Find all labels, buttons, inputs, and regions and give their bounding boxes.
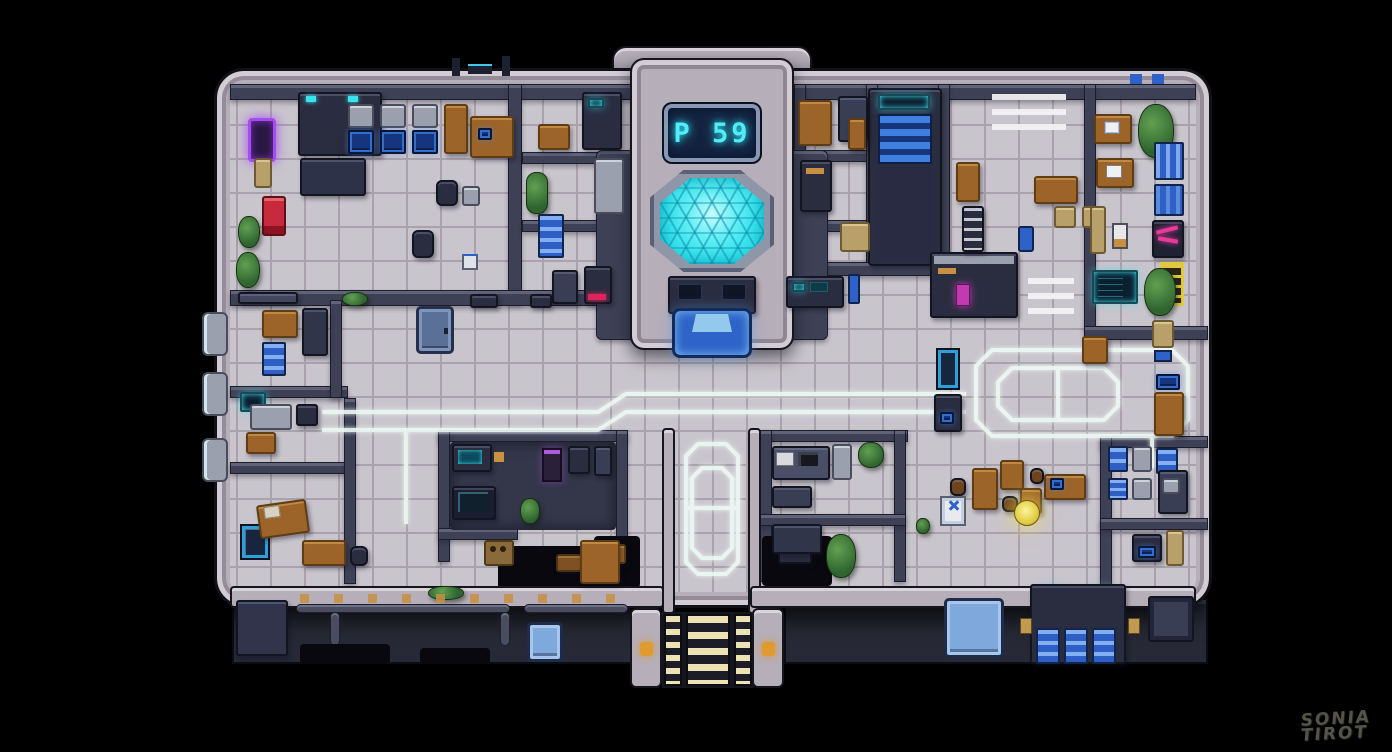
ladder-rack bbox=[962, 206, 984, 252]
entrance-lamp bbox=[762, 642, 775, 656]
walkway-wall bbox=[662, 428, 675, 614]
cabinet-white[interactable] bbox=[1132, 446, 1152, 472]
facade-locker[interactable] bbox=[1036, 628, 1060, 664]
blue-pillar-unit bbox=[848, 274, 860, 304]
blue-bookshelf bbox=[1154, 184, 1184, 216]
facade-recess bbox=[420, 648, 490, 664]
wall-shelf bbox=[238, 292, 298, 304]
lounge-table bbox=[302, 540, 346, 566]
laptop[interactable] bbox=[1050, 478, 1064, 490]
crate-in-vault bbox=[556, 554, 582, 572]
facade-recess bbox=[300, 644, 390, 664]
facade-pipe-elbow bbox=[500, 612, 510, 646]
tall-crate bbox=[1090, 206, 1106, 254]
supply-crate bbox=[840, 222, 870, 252]
blue-drawer-unit bbox=[262, 342, 286, 376]
artist-signature: SONIA TIROT bbox=[1289, 710, 1382, 745]
wall bbox=[330, 300, 342, 398]
machine-ledge bbox=[934, 256, 1014, 264]
blue-staircase[interactable] bbox=[878, 114, 932, 164]
wall bbox=[230, 462, 352, 474]
wall-cabinet bbox=[254, 158, 272, 188]
beige-machine bbox=[1166, 530, 1184, 566]
plant bbox=[520, 498, 540, 524]
interior-door[interactable] bbox=[416, 306, 454, 354]
display-case bbox=[1112, 223, 1128, 249]
wall bbox=[438, 430, 628, 442]
plant bbox=[236, 252, 260, 288]
facade-door-blue[interactable] bbox=[527, 622, 563, 662]
cabinet bbox=[552, 270, 578, 304]
chair bbox=[950, 478, 966, 496]
entrance-stairs-right[interactable] bbox=[734, 614, 752, 686]
fridge[interactable] bbox=[832, 444, 852, 480]
facade-locker[interactable] bbox=[1064, 628, 1088, 664]
facade-machine bbox=[1148, 596, 1194, 642]
planter bbox=[342, 292, 368, 306]
wooden-shelf bbox=[470, 116, 514, 158]
radio-dial bbox=[500, 546, 506, 552]
gold-slot bbox=[1128, 618, 1140, 634]
console-screen bbox=[722, 284, 746, 300]
chamber-display-screen[interactable]: P 59 bbox=[664, 104, 760, 162]
glowing-lamp bbox=[1014, 500, 1040, 526]
wooden-counter bbox=[580, 540, 620, 584]
tall-tree bbox=[826, 534, 856, 578]
crate-stack bbox=[798, 100, 832, 146]
storage-shelves bbox=[772, 524, 822, 554]
exterior-pod bbox=[202, 438, 228, 482]
table bbox=[1082, 336, 1108, 364]
crate bbox=[1054, 206, 1076, 228]
stairwell-shadow bbox=[876, 166, 934, 260]
cafeteria-table bbox=[1000, 460, 1024, 490]
facade-pipe bbox=[296, 604, 510, 613]
desk-monitor bbox=[296, 404, 318, 426]
wooden-cabinet bbox=[444, 104, 468, 154]
roof-vent bbox=[468, 64, 492, 74]
side-table bbox=[462, 186, 480, 206]
rack-item bbox=[806, 168, 824, 174]
shelf bbox=[594, 446, 612, 476]
entrance-lamp bbox=[640, 642, 653, 656]
hazard-crosswalk bbox=[1028, 278, 1074, 318]
white-table bbox=[940, 496, 966, 526]
wall-machine bbox=[470, 294, 498, 308]
plant bbox=[858, 442, 884, 468]
console-screen bbox=[792, 282, 806, 292]
microwave bbox=[776, 452, 794, 466]
small-plant bbox=[916, 518, 930, 534]
wooden-cabinet bbox=[956, 162, 980, 202]
roof-antenna bbox=[502, 56, 510, 76]
desk bbox=[1154, 392, 1184, 436]
facade-locker[interactable] bbox=[1092, 628, 1116, 664]
blue-bookshelf bbox=[1154, 142, 1184, 180]
bed-foot-table bbox=[300, 158, 366, 196]
console-screen bbox=[810, 282, 828, 292]
blue-device[interactable] bbox=[1156, 374, 1180, 390]
honeycomb-pattern bbox=[660, 178, 764, 264]
facade-pipe bbox=[524, 604, 628, 613]
roof-antenna bbox=[452, 58, 460, 76]
desk-terminal[interactable] bbox=[412, 130, 438, 154]
hanging-plants bbox=[526, 172, 548, 214]
office-desk bbox=[250, 404, 292, 430]
console-item bbox=[494, 452, 504, 462]
blue-cabinet[interactable] bbox=[538, 214, 564, 258]
wall bbox=[760, 430, 908, 442]
office-chair bbox=[436, 180, 458, 206]
gold-slot bbox=[1020, 618, 1032, 634]
large-blue-door[interactable] bbox=[944, 598, 1004, 658]
door-handle bbox=[444, 328, 448, 334]
wall-machine bbox=[530, 294, 552, 308]
plant bbox=[238, 216, 260, 248]
desk-terminal[interactable] bbox=[380, 130, 406, 154]
pillow bbox=[263, 505, 281, 519]
file-shelf bbox=[302, 308, 328, 356]
stored-box bbox=[1162, 478, 1180, 494]
large-plant bbox=[1144, 268, 1176, 316]
entrance-stairs-main[interactable] bbox=[686, 614, 730, 686]
crate bbox=[1152, 320, 1174, 348]
facade-pipe-elbow bbox=[330, 612, 340, 646]
console bbox=[568, 446, 590, 474]
wooden-bench bbox=[1034, 176, 1078, 204]
facade-window-strip bbox=[300, 594, 620, 603]
roof-flag bbox=[1152, 74, 1164, 84]
terminal-display[interactable] bbox=[1092, 270, 1138, 304]
shelf-unit bbox=[594, 158, 624, 214]
cooktop bbox=[798, 452, 818, 466]
energy-pool[interactable] bbox=[660, 178, 764, 264]
holo-gate-glow bbox=[692, 314, 732, 332]
waste-bin bbox=[462, 254, 478, 270]
roof-flag bbox=[1130, 74, 1142, 84]
locker[interactable] bbox=[1108, 446, 1128, 472]
neon-purple-sign bbox=[248, 118, 276, 162]
exterior-pod bbox=[202, 372, 228, 416]
drawer-unit[interactable] bbox=[1108, 478, 1128, 500]
bed-indicator bbox=[306, 96, 316, 102]
exterior-pod bbox=[202, 312, 228, 356]
magenta-screen bbox=[956, 284, 970, 306]
console-screen bbox=[458, 450, 482, 464]
wall bbox=[438, 430, 450, 562]
stairwell-sign-screen bbox=[878, 94, 930, 110]
tablet-on-shelf bbox=[478, 128, 492, 140]
wall bbox=[1100, 518, 1208, 530]
desk-shelf bbox=[412, 104, 438, 128]
console-red-light bbox=[588, 294, 606, 300]
radio-device bbox=[484, 540, 514, 566]
screen-panel bbox=[458, 492, 488, 512]
entrance-stairs-left[interactable] bbox=[664, 614, 682, 686]
machine-slot bbox=[938, 268, 956, 274]
wooden-cabinet bbox=[848, 118, 866, 150]
hazard-crosswalk bbox=[992, 94, 1066, 138]
wall-console[interactable] bbox=[786, 276, 844, 308]
office-desk bbox=[262, 310, 298, 338]
chair bbox=[1030, 468, 1044, 484]
standing-terminal[interactable] bbox=[936, 348, 960, 390]
wall bbox=[894, 430, 906, 582]
office-chair bbox=[412, 230, 434, 258]
crate-stack bbox=[538, 124, 570, 150]
kitchen-island bbox=[772, 486, 812, 508]
signature-line-2: TIROT bbox=[1289, 725, 1380, 745]
cafeteria-table bbox=[972, 468, 998, 510]
blue-bench bbox=[1154, 350, 1172, 362]
open-book bbox=[1104, 121, 1120, 134]
bed-indicator bbox=[348, 96, 358, 102]
machine-screen bbox=[1138, 546, 1156, 558]
vending-machine-purple[interactable] bbox=[542, 448, 562, 482]
small-table bbox=[246, 432, 276, 454]
facade-panel bbox=[236, 600, 288, 656]
desk-shelf bbox=[348, 104, 374, 128]
desk-shelf bbox=[380, 104, 406, 128]
terminal-base-screen bbox=[940, 412, 954, 424]
chair bbox=[350, 546, 368, 566]
locker-screen bbox=[588, 98, 604, 108]
vending-machine-red[interactable] bbox=[262, 196, 286, 236]
blue-seat bbox=[1018, 226, 1034, 252]
game-map-screenshot: P 59 bbox=[0, 0, 1392, 752]
radio-dial bbox=[490, 546, 496, 552]
desk-terminal[interactable] bbox=[348, 130, 374, 154]
drawer-unit[interactable] bbox=[1132, 478, 1152, 500]
open-book bbox=[1106, 165, 1122, 178]
console-screen bbox=[678, 284, 702, 300]
